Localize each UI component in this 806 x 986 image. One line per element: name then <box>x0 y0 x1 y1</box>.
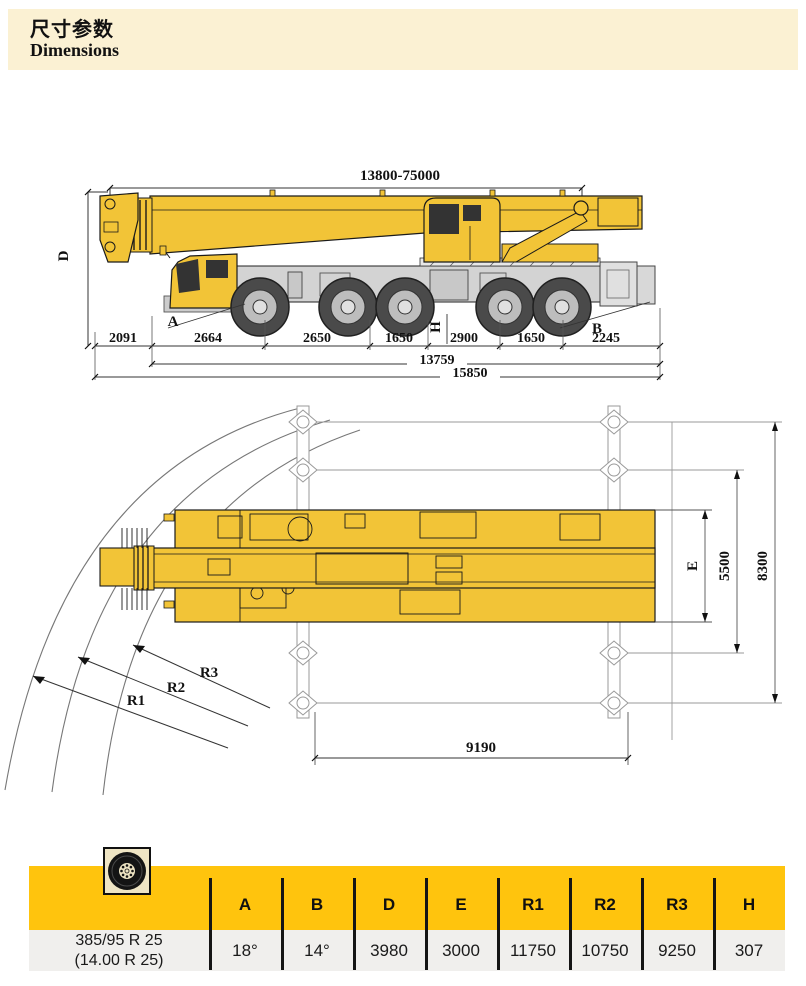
col-header-r2: R2 <box>569 866 641 930</box>
dim-2664: 2664 <box>194 331 222 346</box>
table-divider <box>353 878 356 970</box>
label-a: A <box>168 314 179 330</box>
label-r3: R3 <box>200 665 218 681</box>
dim-2245: 2245 <box>592 331 620 346</box>
tire-icon-graphic <box>105 849 149 893</box>
table-divider <box>425 878 428 970</box>
col-header-r3: R3 <box>641 866 713 930</box>
side-view-drawing: 13800-75000 D <box>56 168 663 381</box>
value-b: 14° <box>281 930 353 971</box>
value-h: 307 <box>713 930 785 971</box>
table-divider <box>641 878 644 970</box>
value-e: 3000 <box>425 930 497 971</box>
value-r3: 9250 <box>641 930 713 971</box>
dim-1650-rear: 1650 <box>517 331 545 346</box>
top-view-drawing: R1 R2 R3 <box>5 406 782 795</box>
table-divider <box>281 878 284 970</box>
dim-2650: 2650 <box>303 331 331 346</box>
col-header-b: B <box>281 866 353 930</box>
dim-boom-length-range: 13800-75000 <box>360 168 440 184</box>
label-r2: R2 <box>167 680 185 696</box>
tyre-size-line2: (14.00 R 25) <box>75 951 164 971</box>
dim-8300: 8300 <box>755 551 771 581</box>
dim-2900: 2900 <box>450 331 478 346</box>
col-header-e: E <box>425 866 497 930</box>
label-d: D <box>56 250 72 261</box>
table-divider <box>209 878 212 970</box>
table-divider <box>713 878 716 970</box>
tire-icon <box>103 847 151 895</box>
dim-13759: 13759 <box>420 353 455 368</box>
dimensions-page: 尺寸参数 Dimensions 13800-75000 D <box>0 0 806 986</box>
col-header-h: H <box>713 866 785 930</box>
tyre-size-line1: 385/95 R 25 <box>75 931 162 951</box>
table-data-row: 385/95 R 25 (14.00 R 25) 18° 14° 3980 30… <box>29 930 785 971</box>
dim-5500: 5500 <box>717 551 733 581</box>
value-d: 3980 <box>353 930 425 971</box>
table-divider <box>497 878 500 970</box>
tyre-size-cell: 385/95 R 25 (14.00 R 25) <box>29 930 209 971</box>
label-h: H <box>428 321 444 333</box>
value-r2: 10750 <box>569 930 641 971</box>
label-r1: R1 <box>127 693 145 709</box>
label-e: E <box>685 561 701 571</box>
dim-2091: 2091 <box>109 331 137 346</box>
dimension-diagrams: 13800-75000 D <box>0 0 806 986</box>
dim-9190: 9190 <box>466 740 496 756</box>
col-header-r1: R1 <box>497 866 569 930</box>
table-divider <box>569 878 572 970</box>
value-a: 18° <box>209 930 281 971</box>
col-header-a: A <box>209 866 281 930</box>
dim-15850: 15850 <box>453 366 488 381</box>
dim-1650-front: 1650 <box>385 331 413 346</box>
col-header-d: D <box>353 866 425 930</box>
value-r1: 11750 <box>497 930 569 971</box>
